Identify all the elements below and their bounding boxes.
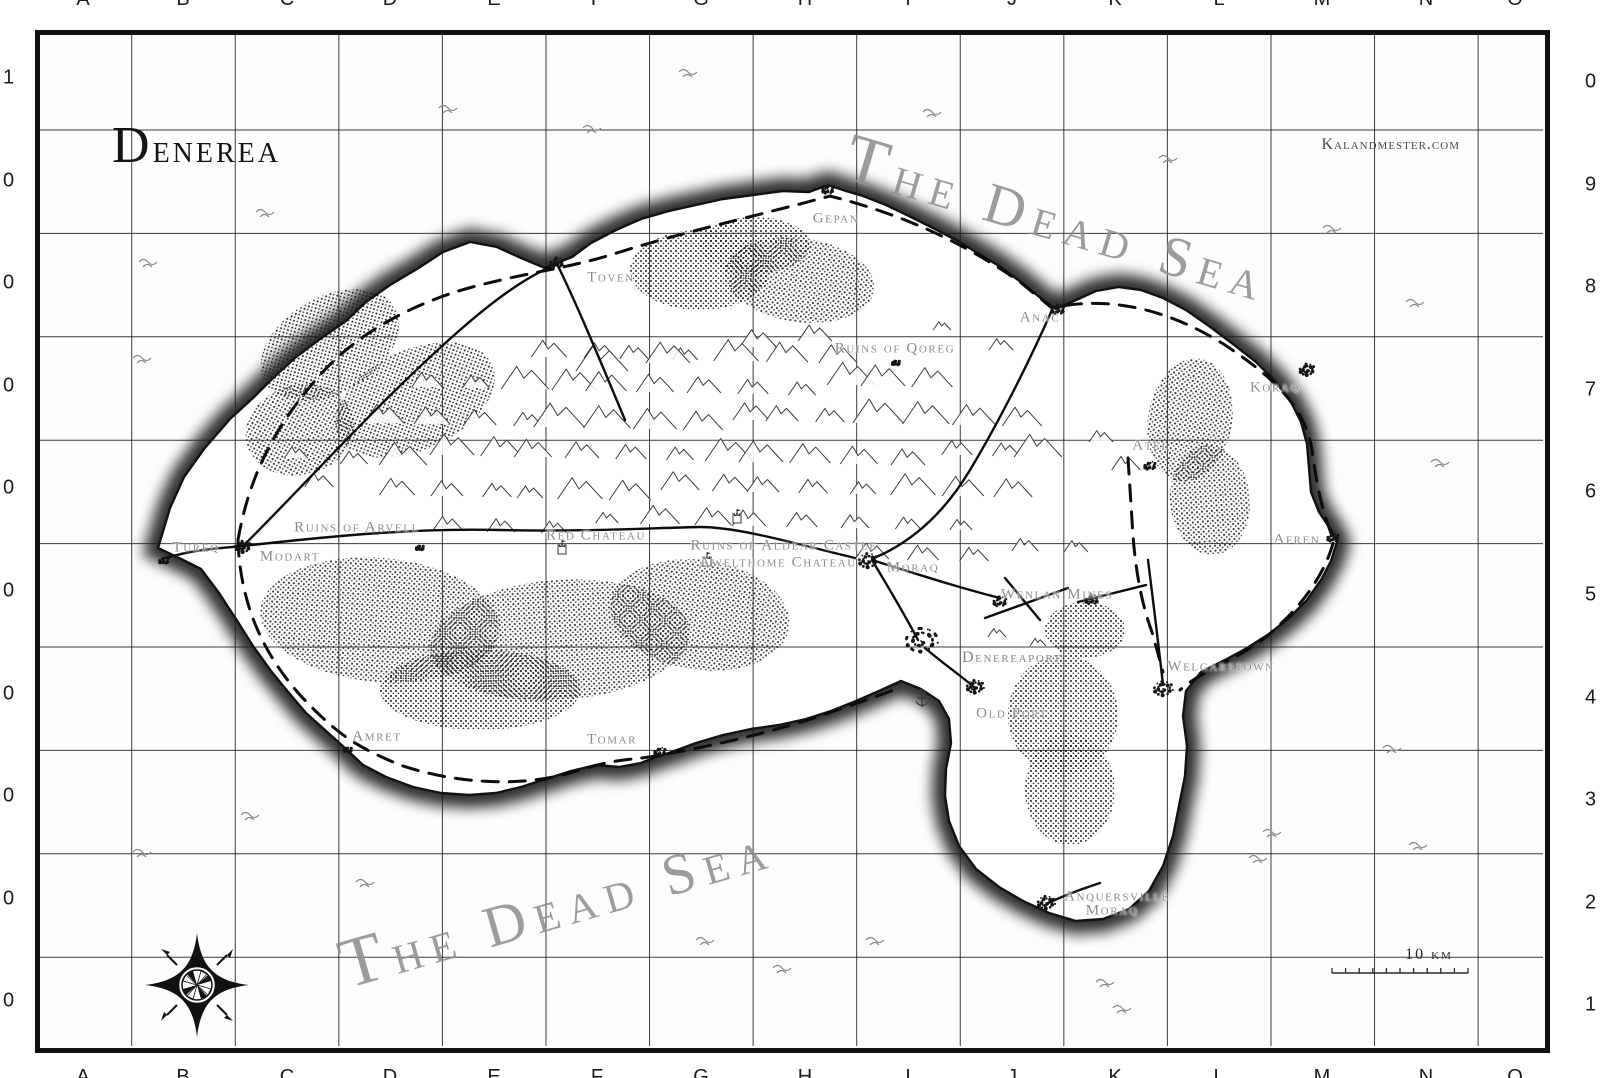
place-label-ruins-of-qoreg: Ruins of Qoreg (835, 341, 955, 358)
grid-letter-top: B (176, 0, 189, 11)
grid-letter-bottom: J (1007, 1066, 1017, 1078)
grid-letter-bottom: I (905, 1066, 911, 1078)
grid-number-right: 3 (1585, 789, 1596, 812)
grid-letter-top: J (1007, 0, 1017, 11)
grid-number-right: 4 (1585, 686, 1596, 709)
grid-number-right: 2 (1585, 891, 1596, 914)
grid-number-left: 0 (3, 990, 14, 1013)
grid-number-left: 0 (3, 374, 14, 397)
grid-letter-bottom: D (383, 1066, 397, 1078)
grid-letter-top: I (905, 0, 911, 11)
place-label-ruins-of-aldear-castle: Ruins of Aldear Castle (690, 538, 877, 555)
place-label-old-port: Old Port (976, 706, 1048, 723)
grid-number-left: 0 (3, 887, 14, 910)
place-label-moraq: Moraq (887, 560, 940, 577)
place-label-ruins-of-arvell: Ruins of Arvell (294, 520, 420, 537)
place-label-gepan: Gepan (813, 211, 860, 228)
place-label-tureq: Tureq (172, 540, 219, 557)
place-label-koraq: Koraq (1250, 380, 1300, 397)
grid-letter-top: M (1314, 0, 1331, 11)
place-label-anac: Anac (1020, 310, 1060, 327)
grid-letter-top: N (1419, 0, 1433, 11)
grid-number-right: 1 (1585, 994, 1596, 1017)
place-label-awelthome-chateau: Awelthome Chateau (699, 555, 857, 572)
attribution-text: Kalandmester.com (1295, 136, 1460, 154)
grid-letter-bottom: O (1507, 1066, 1523, 1078)
grid-number-left: 0 (3, 272, 14, 295)
grid-number-left: 0 (3, 169, 14, 192)
place-label-tomar: Tomar (587, 732, 637, 749)
grid-number-left: 1 (3, 67, 14, 90)
place-label-red-chateau: Red Chateau (546, 528, 646, 545)
grid-letter-bottom: G (693, 1066, 709, 1078)
place-label-denereaport: Denereaport (962, 649, 1062, 667)
grid-number-left: 0 (3, 580, 14, 603)
map-title: Denerea (112, 116, 281, 175)
grid-letter-top: A (76, 0, 89, 11)
grid-number-right: 8 (1585, 276, 1596, 299)
grid-letter-top: E (487, 0, 500, 11)
grid-number-right: 5 (1585, 584, 1596, 607)
grid-letter-bottom: B (176, 1066, 189, 1078)
grid-letter-top: F (591, 0, 603, 11)
grid-number-left: 0 (3, 785, 14, 808)
grid-letter-top: H (798, 0, 812, 11)
grid-letter-top: K (1108, 0, 1121, 11)
place-label-atel: Atel (1132, 438, 1169, 455)
grid-letter-bottom: E (487, 1066, 500, 1078)
grid-number-right: 9 (1585, 173, 1596, 196)
grid-number-left: 0 (3, 682, 14, 705)
grid-letter-top: D (383, 0, 397, 11)
grid-letter-bottom: C (280, 1066, 294, 1078)
place-label-moraq: Moraq (1086, 903, 1139, 920)
grid-number-right: 7 (1585, 378, 1596, 401)
grid-letter-bottom: N (1419, 1066, 1433, 1078)
grid-number-left: 0 (3, 477, 14, 500)
grid-number-right: 0 (1585, 71, 1596, 94)
grid-letter-top: C (280, 0, 294, 11)
grid-letter-bottom: A (76, 1066, 89, 1078)
place-label-welgarstown: Welgarstown (1167, 659, 1274, 676)
grid-letter-top: L (1213, 0, 1224, 11)
grid-letter-bottom: K (1108, 1066, 1121, 1078)
fantasy-map-canvas: Denerea Kalandmester.com The Dead Sea Th… (0, 0, 1600, 1078)
grid-number-right: 6 (1585, 481, 1596, 504)
grid-letter-bottom: H (798, 1066, 812, 1078)
grid-letter-top: G (693, 0, 709, 11)
place-label-wenlan-mines: Wenlan Mines (1001, 587, 1113, 604)
place-label-modart: Modart (260, 549, 320, 566)
grid-letter-bottom: M (1314, 1066, 1331, 1078)
grid-letter-bottom: F (591, 1066, 603, 1078)
grid-letter-top: O (1507, 0, 1523, 11)
place-label-afren: Afren (1274, 532, 1321, 549)
place-label-amret: Amret (352, 729, 401, 746)
scale-label: 10 km (1405, 946, 1453, 964)
grid-letter-bottom: L (1213, 1066, 1224, 1078)
place-label-toven: Toven (587, 270, 635, 287)
